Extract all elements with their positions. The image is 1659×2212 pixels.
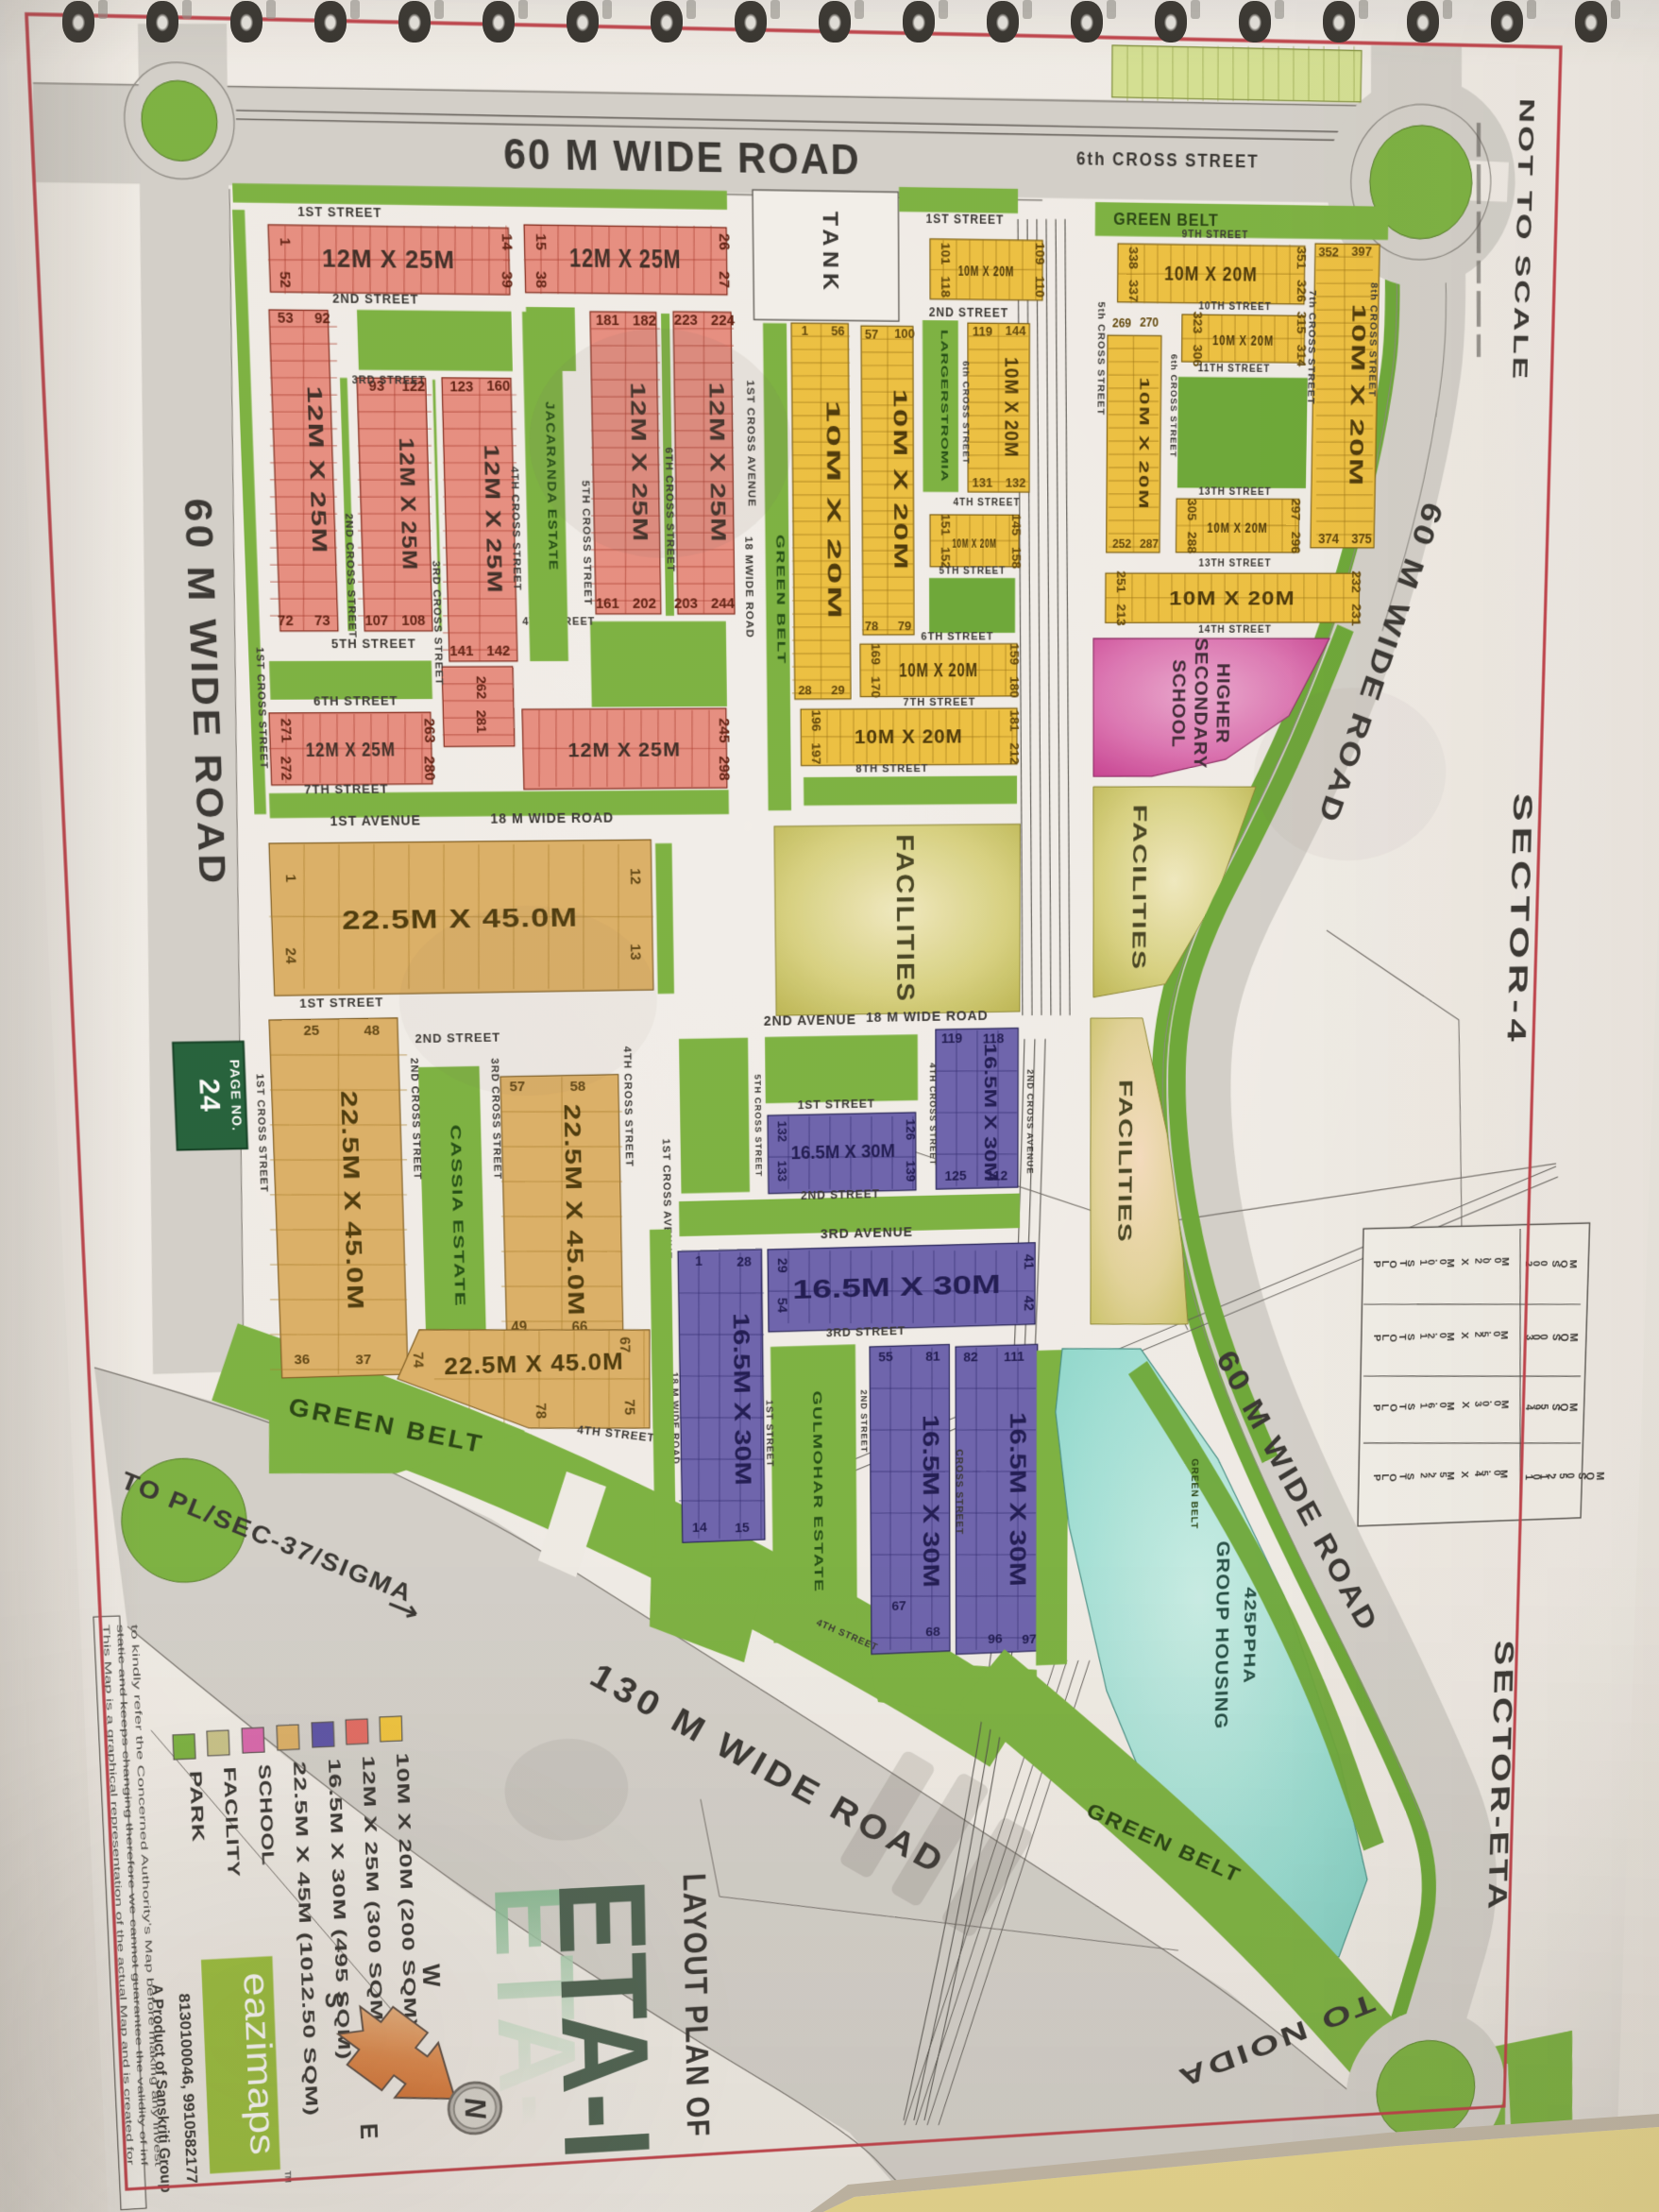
svg-text:GULMOHAR ESTATE: GULMOHAR ESTATE xyxy=(810,1390,825,1592)
svg-text:7th CROSS STREET: 7th CROSS STREET xyxy=(1306,290,1318,405)
svg-text:271: 271 xyxy=(278,718,294,742)
svg-text:7TH STREET: 7TH STREET xyxy=(304,782,389,797)
svg-text:1ST AVENUE: 1ST AVENUE xyxy=(330,813,421,829)
svg-text:182: 182 xyxy=(633,312,656,329)
svg-text:39: 39 xyxy=(499,271,515,288)
svg-text:251: 251 xyxy=(1113,570,1127,592)
svg-text:53: 53 xyxy=(278,310,294,327)
svg-text:1: 1 xyxy=(802,324,808,339)
svg-text:2ND STREET: 2ND STREET xyxy=(858,1389,869,1453)
svg-text:119: 119 xyxy=(973,324,992,339)
svg-text:3RD AVENUE: 3RD AVENUE xyxy=(821,1224,913,1241)
svg-text:252: 252 xyxy=(1112,536,1131,551)
svg-text:203: 203 xyxy=(674,595,698,612)
svg-text:213: 213 xyxy=(1113,604,1127,625)
svg-text:272: 272 xyxy=(278,757,294,781)
svg-text:22.5M X 45.0M: 22.5M X 45.0M xyxy=(444,1348,624,1379)
svg-text:1: 1 xyxy=(695,1254,703,1269)
svg-text:24: 24 xyxy=(193,1079,226,1113)
svg-text:1ST STREET: 1ST STREET xyxy=(297,203,382,219)
svg-text:287: 287 xyxy=(1140,536,1159,551)
svg-text:145: 145 xyxy=(1008,514,1022,536)
svg-text:5TH STREET: 5TH STREET xyxy=(331,637,416,651)
svg-text:180: 180 xyxy=(1007,676,1021,698)
svg-text:245: 245 xyxy=(716,718,732,742)
svg-text:78: 78 xyxy=(865,620,879,634)
svg-text:181: 181 xyxy=(596,312,619,329)
svg-text:FACILITIES: FACILITIES xyxy=(1113,1080,1136,1243)
svg-text:123: 123 xyxy=(449,378,474,395)
svg-text:323: 323 xyxy=(1190,312,1204,334)
svg-text:296: 296 xyxy=(1288,532,1302,553)
svg-text:42: 42 xyxy=(1022,1296,1037,1312)
svg-text:132: 132 xyxy=(1006,477,1026,491)
svg-text:67: 67 xyxy=(891,1598,906,1614)
svg-text:131: 131 xyxy=(973,477,993,491)
svg-text:SECONDARY: SECONDARY xyxy=(1191,638,1212,769)
svg-text:38: 38 xyxy=(533,271,549,288)
svg-text:196: 196 xyxy=(808,709,821,731)
svg-text:5TH STREET: 5TH STREET xyxy=(940,567,1007,577)
svg-text:48: 48 xyxy=(364,1022,380,1039)
svg-text:1ST STREET: 1ST STREET xyxy=(299,995,383,1011)
svg-text:W: W xyxy=(417,1964,446,1988)
svg-text:375: 375 xyxy=(1351,532,1372,547)
svg-text:126: 126 xyxy=(903,1119,917,1141)
svg-text:338: 338 xyxy=(1126,247,1139,269)
svg-text:13TH STREET: 13TH STREET xyxy=(1198,486,1271,498)
svg-text:6th CROSS STREET: 6th CROSS STREET xyxy=(1076,150,1260,173)
svg-text:12M X 25M: 12M X 25M xyxy=(322,244,456,273)
svg-text:13TH STREET: 13TH STREET xyxy=(1198,558,1271,570)
svg-text:22.5M X 45.0M: 22.5M X 45.0M xyxy=(559,1104,589,1318)
svg-text:PAGE NO.: PAGE NO. xyxy=(227,1060,244,1132)
svg-text:298: 298 xyxy=(716,756,732,780)
svg-text:1ST STREET: 1ST STREET xyxy=(798,1097,875,1112)
svg-text:2ND STREET: 2ND STREET xyxy=(332,291,419,307)
svg-text:28: 28 xyxy=(798,684,812,698)
svg-text:10M X 20M: 10M X 20M xyxy=(1169,587,1295,608)
svg-text:8th CROSS STREET: 8th CROSS STREET xyxy=(1366,282,1379,398)
svg-text:109: 109 xyxy=(1032,243,1045,265)
svg-text:158: 158 xyxy=(1009,547,1024,569)
svg-text:270: 270 xyxy=(1140,315,1159,330)
svg-text:107: 107 xyxy=(364,613,388,629)
svg-text:1ST STREET: 1ST STREET xyxy=(764,1400,775,1468)
svg-text:263: 263 xyxy=(421,718,438,742)
svg-text:28: 28 xyxy=(736,1253,752,1268)
svg-text:8TH STREET: 8TH STREET xyxy=(855,762,928,774)
svg-text:HIGHER: HIGHER xyxy=(1212,663,1233,744)
svg-text:12: 12 xyxy=(627,868,643,885)
svg-text:141: 141 xyxy=(449,642,474,659)
svg-text:1ST STREET: 1ST STREET xyxy=(926,212,1005,227)
svg-text:1: 1 xyxy=(282,875,298,883)
svg-text:68: 68 xyxy=(925,1624,940,1640)
svg-text:144: 144 xyxy=(1006,324,1026,339)
svg-text:18 M WIDE ROAD: 18 M WIDE ROAD xyxy=(866,1008,989,1025)
svg-text:29: 29 xyxy=(774,1258,789,1273)
svg-text:18 MWIDE ROAD: 18 MWIDE ROAD xyxy=(743,536,756,638)
svg-text:181: 181 xyxy=(1007,709,1022,731)
svg-text:100: 100 xyxy=(894,327,915,342)
svg-text:169: 169 xyxy=(868,643,881,665)
svg-text:5TH CROSS STREET: 5TH CROSS STREET xyxy=(753,1074,763,1177)
svg-text:161: 161 xyxy=(596,595,619,612)
svg-text:FACILITIES: FACILITIES xyxy=(891,834,919,1003)
svg-text:262: 262 xyxy=(473,676,488,699)
svg-text:10TH STREET: 10TH STREET xyxy=(1198,301,1271,313)
svg-text:55: 55 xyxy=(878,1350,893,1365)
svg-text:197: 197 xyxy=(808,742,821,764)
svg-text:10M X 20M: 10M X 20M xyxy=(822,400,845,621)
svg-text:TANK: TANK xyxy=(818,212,842,296)
svg-text:280: 280 xyxy=(421,756,438,780)
svg-text:374: 374 xyxy=(1318,532,1339,547)
svg-text:7TH STREET: 7TH STREET xyxy=(903,696,975,708)
svg-text:12M X 25M: 12M X 25M xyxy=(305,738,396,760)
svg-text:326: 326 xyxy=(1294,280,1308,302)
svg-text:12M X 25M: 12M X 25M xyxy=(567,738,681,760)
svg-text:133: 133 xyxy=(774,1161,788,1183)
svg-text:119: 119 xyxy=(941,1030,963,1046)
svg-text:110: 110 xyxy=(1032,276,1045,298)
svg-text:142: 142 xyxy=(486,642,510,659)
svg-text:12M X 25M: 12M X 25M xyxy=(569,244,682,274)
svg-text:4TH STREET: 4TH STREET xyxy=(954,497,1021,508)
svg-text:14TH STREET: 14TH STREET xyxy=(1198,624,1271,636)
svg-text:6TH STREET: 6TH STREET xyxy=(921,630,993,642)
svg-text:54: 54 xyxy=(774,1298,789,1314)
svg-text:FACILITIES: FACILITIES xyxy=(1128,805,1150,971)
svg-text:10M X 20M: 10M X 20M xyxy=(899,659,978,682)
svg-text:288: 288 xyxy=(1184,532,1198,553)
svg-text:16.5M X 30M: 16.5M X 30M xyxy=(918,1414,943,1588)
svg-text:79: 79 xyxy=(898,620,912,634)
svg-text:10M X 20M: 10M X 20M xyxy=(958,263,1014,281)
svg-text:16.5M X 30M: 16.5M X 30M xyxy=(981,1043,1000,1182)
svg-text:SCHOOL: SCHOOL xyxy=(255,1763,278,1865)
svg-text:41: 41 xyxy=(1022,1254,1037,1270)
svg-text:26: 26 xyxy=(716,233,732,250)
svg-text:170: 170 xyxy=(868,676,881,698)
svg-text:S: S xyxy=(320,1991,347,2008)
svg-text:2ND CROSS AVENUE: 2ND CROSS AVENUE xyxy=(1024,1069,1034,1175)
svg-text:425PPHA: 425PPHA xyxy=(1240,1587,1259,1684)
svg-text:16.5M X 30M: 16.5M X 30M xyxy=(792,1268,1000,1304)
svg-text:97: 97 xyxy=(1022,1631,1037,1647)
svg-text:18 M WIDE ROAD: 18 M WIDE ROAD xyxy=(490,810,614,826)
svg-text:281: 281 xyxy=(473,710,488,734)
svg-text:73: 73 xyxy=(314,613,330,629)
svg-text:4TH CROSS STREET: 4TH CROSS STREET xyxy=(927,1063,938,1166)
svg-text:160: 160 xyxy=(486,378,510,395)
svg-text:TM: TM xyxy=(282,2170,293,2183)
svg-text:15: 15 xyxy=(735,1521,750,1536)
svg-text:1: 1 xyxy=(277,238,293,247)
svg-text:159: 159 xyxy=(1007,643,1022,665)
svg-text:4TH CROSS STREET: 4TH CROSS STREET xyxy=(621,1046,635,1167)
svg-text:12M X 25M: 12M X 25M xyxy=(480,444,506,593)
svg-text:2ND STREET: 2ND STREET xyxy=(801,1186,880,1201)
svg-text:12M X 25M: 12M X 25M xyxy=(394,437,421,570)
svg-text:3RD STREET: 3RD STREET xyxy=(351,373,426,386)
svg-text:10M X 20M: 10M X 20M xyxy=(889,389,911,571)
svg-text:GREEN BELT: GREEN BELT xyxy=(1189,1458,1200,1529)
svg-text:GREEN BELT: GREEN BELT xyxy=(774,535,788,665)
svg-text:223: 223 xyxy=(674,311,698,329)
svg-text:74: 74 xyxy=(410,1352,426,1369)
svg-text:11TH STREET: 11TH STREET xyxy=(1198,363,1271,374)
svg-text:52: 52 xyxy=(277,271,293,288)
svg-text:10M X 20M: 10M X 20M xyxy=(855,725,963,748)
svg-text:9TH STREET: 9TH STREET xyxy=(1182,230,1249,242)
svg-text:6th CROSS STREET: 6th CROSS STREET xyxy=(960,361,970,465)
svg-text:LAYOUT PLAN OF: LAYOUT PLAN OF xyxy=(676,1872,717,2138)
svg-text:N: N xyxy=(459,2097,493,2120)
svg-text:37: 37 xyxy=(355,1351,371,1367)
svg-text:92: 92 xyxy=(314,310,330,327)
svg-text:57: 57 xyxy=(865,327,879,342)
svg-text:352: 352 xyxy=(1318,244,1339,260)
svg-text:PARK: PARK xyxy=(186,1770,208,1843)
svg-text:231: 231 xyxy=(1348,604,1363,626)
svg-text:14: 14 xyxy=(499,233,515,250)
svg-text:14: 14 xyxy=(692,1521,708,1536)
svg-text:151: 151 xyxy=(938,514,951,536)
svg-text:269: 269 xyxy=(1112,315,1131,330)
svg-text:16.5M X 30M: 16.5M X 30M xyxy=(790,1140,895,1164)
svg-text:82: 82 xyxy=(963,1349,978,1365)
svg-text:16.5M X 30M: 16.5M X 30M xyxy=(729,1313,756,1487)
svg-text:GREEN BELT: GREEN BELT xyxy=(1113,209,1219,230)
svg-text:16.5M X 30M: 16.5M X 30M xyxy=(1005,1412,1030,1587)
svg-text:202: 202 xyxy=(633,595,656,612)
svg-text:5th CROSS STREET: 5th CROSS STREET xyxy=(1095,301,1106,416)
svg-text:10M X 20M: 10M X 20M xyxy=(1001,357,1023,458)
svg-text:337: 337 xyxy=(1126,280,1139,302)
svg-text:132: 132 xyxy=(774,1121,788,1143)
svg-text:96: 96 xyxy=(988,1631,1003,1647)
svg-text:60 M WIDE ROAD: 60 M WIDE ROAD xyxy=(503,129,861,184)
svg-text:125: 125 xyxy=(944,1168,966,1183)
svg-text:SCHOOL: SCHOOL xyxy=(1168,659,1189,748)
svg-text:25: 25 xyxy=(303,1022,319,1039)
svg-text:CROSS STREET: CROSS STREET xyxy=(954,1449,965,1535)
svg-text:244: 244 xyxy=(711,595,736,612)
svg-text:72: 72 xyxy=(278,613,294,629)
svg-text:224: 224 xyxy=(711,311,736,329)
svg-text:101: 101 xyxy=(938,243,951,265)
svg-text:36: 36 xyxy=(294,1351,310,1367)
svg-text:351: 351 xyxy=(1294,247,1308,269)
svg-text:GROUP HOUSING: GROUP HOUSING xyxy=(1211,1540,1234,1730)
svg-text:E: E xyxy=(355,2122,382,2139)
svg-text:111: 111 xyxy=(1004,1349,1024,1365)
svg-text:24: 24 xyxy=(282,947,299,964)
svg-text:10M X 20M: 10M X 20M xyxy=(1164,262,1258,285)
svg-text:56: 56 xyxy=(831,324,845,339)
svg-text:75: 75 xyxy=(621,1399,638,1416)
svg-text:ETA-I: ETA-I xyxy=(532,1876,675,2163)
svg-text:29: 29 xyxy=(831,684,845,698)
svg-text:78: 78 xyxy=(533,1403,550,1420)
svg-text:81: 81 xyxy=(925,1349,940,1365)
svg-text:297: 297 xyxy=(1288,499,1302,521)
svg-text:232: 232 xyxy=(1348,570,1363,593)
svg-text:108: 108 xyxy=(401,613,426,629)
svg-text:LARGERSTROMIA: LARGERSTROMIA xyxy=(939,330,949,483)
svg-text:eazimaps: eazimaps xyxy=(236,1971,283,2156)
svg-text:118: 118 xyxy=(938,276,951,298)
svg-text:10M X 20M: 10M X 20M xyxy=(952,536,996,550)
svg-text:6TH STREET: 6TH STREET xyxy=(313,694,398,709)
svg-text:10M X 20M: 10M X 20M xyxy=(1212,332,1274,349)
svg-text:10M X 20M: 10M X 20M xyxy=(1207,519,1267,536)
svg-text:10M X 20M: 10M X 20M xyxy=(1136,377,1152,510)
svg-text:212: 212 xyxy=(1007,742,1021,764)
svg-text:15: 15 xyxy=(533,233,549,250)
svg-text:2ND AVENUE: 2ND AVENUE xyxy=(764,1012,856,1029)
svg-text:305: 305 xyxy=(1184,499,1198,521)
svg-text:2ND STREET: 2ND STREET xyxy=(929,305,1008,319)
svg-text:6th CROSS STREET: 6th CROSS STREET xyxy=(1168,354,1178,458)
svg-text:27: 27 xyxy=(716,271,732,288)
svg-text:397: 397 xyxy=(1351,244,1372,259)
svg-text:3RD STREET: 3RD STREET xyxy=(826,1324,906,1339)
svg-text:139: 139 xyxy=(904,1160,918,1182)
